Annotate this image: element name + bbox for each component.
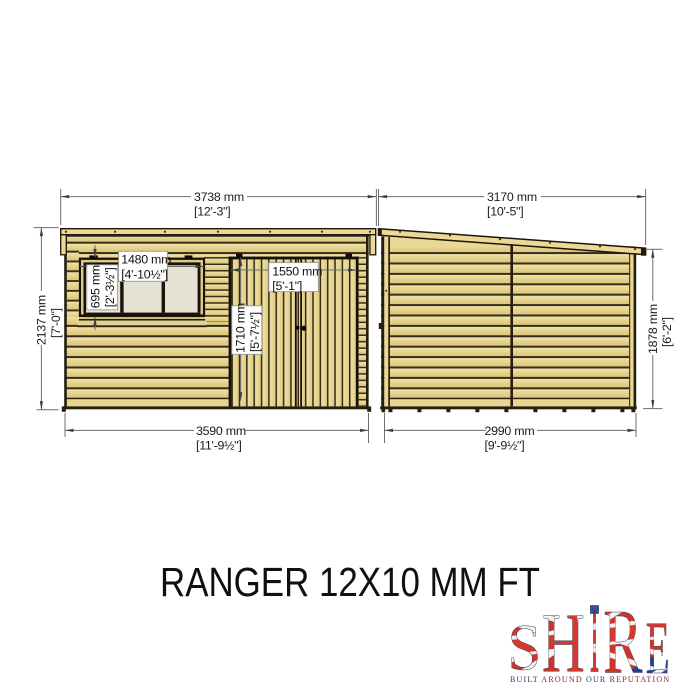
svg-text:[12'-3"]: [12'-3"] <box>194 205 230 219</box>
svg-text:2137 mm: 2137 mm <box>35 295 49 345</box>
svg-text:S: S <box>508 612 542 684</box>
svg-text:3590 mm: 3590 mm <box>196 424 246 438</box>
svg-text:[5'-1"]: [5'-1"] <box>272 279 302 293</box>
svg-text:[11'-9½"]: [11'-9½"] <box>196 438 242 452</box>
svg-text:3170 mm: 3170 mm <box>487 190 537 204</box>
svg-text:[6'-2"]: [6'-2"] <box>660 317 674 347</box>
svg-text:2990 mm: 2990 mm <box>485 424 535 438</box>
svg-text:[9'-9½"]: [9'-9½"] <box>485 438 525 452</box>
svg-text:[7'-0"]: [7'-0"] <box>49 308 63 338</box>
svg-text:1480 mm: 1480 mm <box>121 253 171 267</box>
svg-text:BUILT AROUND OUR REPUTATION: BUILT AROUND OUR REPUTATION <box>510 675 670 684</box>
svg-text:3738 mm: 3738 mm <box>194 190 244 204</box>
svg-text:1550 mm: 1550 mm <box>272 265 322 279</box>
svg-text:1878 mm: 1878 mm <box>646 304 660 354</box>
svg-text:[4'-10½"]: [4'-10½"] <box>121 267 168 281</box>
svg-text:[10'-5"]: [10'-5"] <box>487 205 523 219</box>
svg-text:695 mm: 695 mm <box>89 265 103 308</box>
svg-text:1710 mm: 1710 mm <box>234 303 248 353</box>
svg-text:[5'-7½"]: [5'-7½"] <box>248 312 262 352</box>
svg-text:[2'-3½"]: [2'-3½"] <box>103 267 117 307</box>
svg-text:RANGER 12X10 MM FT: RANGER 12X10 MM FT <box>160 559 540 605</box>
